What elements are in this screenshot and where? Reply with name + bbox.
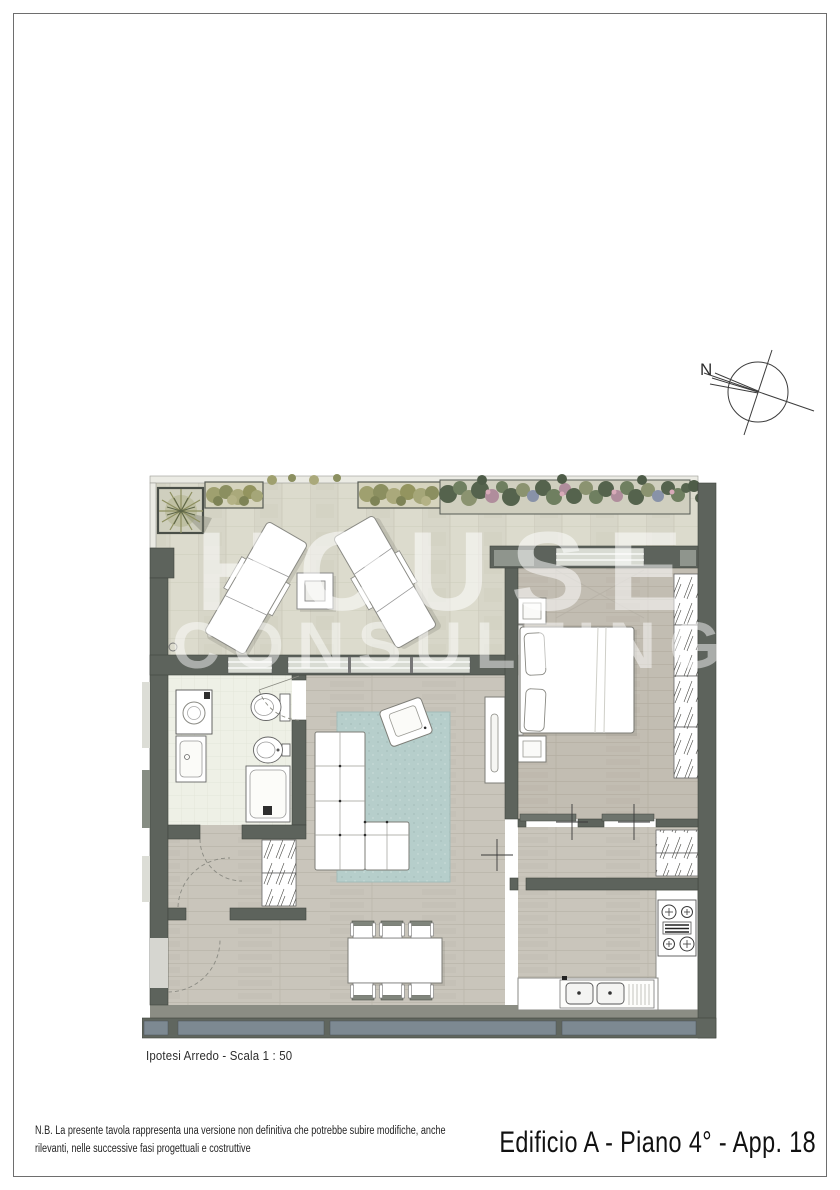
dining-set [348,921,445,1000]
wall-bedroom-south [656,819,698,827]
hedge-planter-2 [358,482,442,508]
pillow [524,689,546,732]
sliding-door-leaf [602,814,654,821]
pillow [524,633,546,676]
wall-right [698,483,716,1038]
window-living-glass-door [288,657,470,673]
dining-table [348,938,442,983]
dining-chair [380,983,405,1000]
balcony-parapet [142,1018,716,1038]
nightstand-top [518,598,546,624]
shower-drain [263,806,272,815]
hall-wardrobe [262,840,296,906]
dining-chair [351,921,376,938]
terrace-railing-left [150,483,156,548]
disclaimer-note: N.B. La presente tavola rappresenta una … [35,1122,462,1159]
wardrobe [674,574,698,778]
corridor-closet [656,830,698,876]
entry-door-opening [150,938,168,988]
compass-rose: N [688,342,828,442]
floor-plan [142,470,732,1045]
dining-chair [351,983,376,1000]
scale-caption: Ipotesi Arredo - Scala 1 : 50 [146,1048,292,1063]
wall-bathroom-south [242,825,306,839]
terrace-side-table [297,573,336,612]
drawing-sheet: N [0,0,840,1190]
flower-planter [439,474,705,514]
compass-north-label: N [700,360,712,379]
dining-chair [409,983,434,1000]
wall-hall-south [230,908,306,920]
faucet-icon [562,976,567,980]
washing-machine [176,690,212,734]
tree-planter [158,488,212,534]
nightstand-bottom [518,736,546,762]
dining-chair [380,921,405,938]
double-bed [518,625,637,736]
shower [246,766,290,822]
cooktop [658,900,696,956]
wall-bathroom-east [292,720,306,825]
entry-hall [262,840,296,906]
window-bedroom [556,548,644,566]
sliding-door-leaf [520,814,576,821]
wall-pillar [150,548,174,578]
wall-bedroom-west [505,568,518,819]
exterior-ledges [142,682,150,902]
tv-cabinet [485,697,505,783]
sheet-title: Edificio A - Piano 4° - App. 18 [499,1126,816,1160]
dining-chair [409,921,434,938]
kitchen-sink [560,976,654,1008]
bathroom-sink [176,736,206,782]
wall-kitchen-north [526,878,698,890]
hedge-planter-1 [205,482,263,508]
window-bathroom [228,657,272,673]
